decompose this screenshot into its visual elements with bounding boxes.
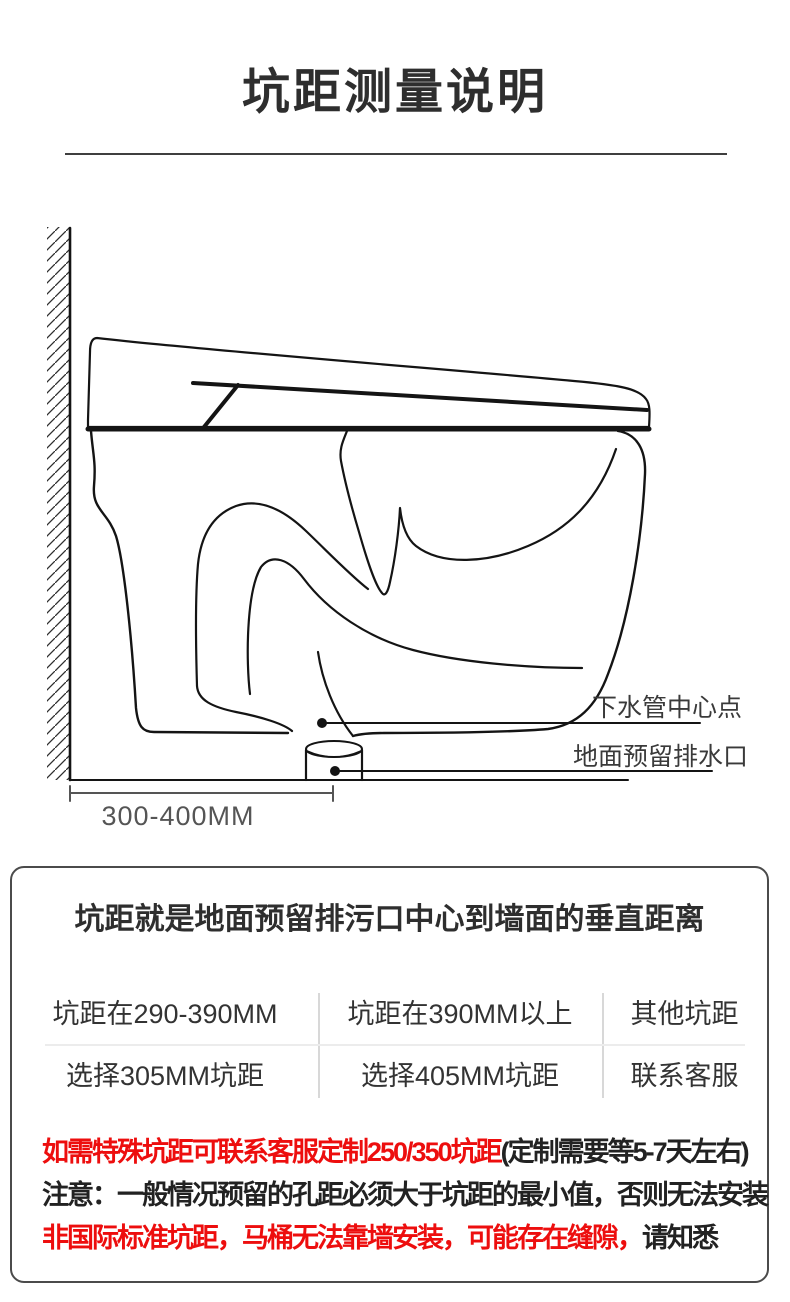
title-divider <box>65 153 727 155</box>
info-box: 坑距就是地面预留排污口中心到墙面的垂直距离 坑距在290-390MM 坑距在39… <box>10 866 769 1283</box>
info-headline: 坑距就是地面预留排污口中心到墙面的垂直距离 <box>12 894 767 938</box>
note-custom-pit-distance: 如需特殊坑距可联系客服定制250/350坑距(定制需要等5-7天左右) <box>42 1131 752 1174</box>
table-cell-action-2: 选择405MM坑距 <box>318 1054 602 1093</box>
table-cell-condition-3: 其他坑距 <box>602 992 767 1031</box>
floor-outlet-label: 地面预留排水口 <box>573 743 748 771</box>
note-non-standard: 非国际标准坑距，马桶无法靠墙安装，可能存在缝隙，请知悉 <box>42 1217 752 1260</box>
dimension-annotation: 300-400MM <box>70 786 333 831</box>
note-attention: 注意：一般情况预留的孔距必须大于坑距的最小值，否则无法安装 <box>42 1174 752 1217</box>
page-title: 坑距测量说明 <box>0 52 790 122</box>
table-cell-condition-1: 坑距在290-390MM <box>12 992 318 1031</box>
table-cell-condition-2: 坑距在390MM以上 <box>318 992 602 1031</box>
toilet-body <box>91 431 645 736</box>
table-row-divider <box>45 1044 745 1046</box>
table-cell-action-3: 联系客服 <box>602 1054 767 1093</box>
page: { "title": { "text": "坑距测量说明" }, "diagra… <box>0 0 790 1302</box>
notes: 如需特殊坑距可联系客服定制250/350坑距(定制需要等5-7天左右) 注意：一… <box>42 1131 752 1260</box>
drain-center-dot <box>317 718 327 728</box>
toilet-lid <box>88 338 650 429</box>
floor-outlet-dot <box>330 766 340 776</box>
drain-center-label: 下水管中心点 <box>592 694 742 722</box>
table-cell-action-1: 选择305MM坑距 <box>12 1054 318 1093</box>
pit-distance-table: 坑距在290-390MM 坑距在390MM以上 其他坑距 选择305MM坑距 选… <box>12 980 767 1104</box>
drain-center-callout: 下水管中心点 <box>317 694 742 728</box>
floor-outlet-callout: 地面预留排水口 <box>330 743 748 776</box>
trap-curve-bowl <box>340 431 616 594</box>
dimension-label: 300-400MM <box>101 801 254 831</box>
toilet-installation-diagram: 下水管中心点 地面预留排水口 300-400MM <box>0 180 790 860</box>
trap-curve-inner <box>248 559 582 694</box>
wall-hatching <box>47 227 70 780</box>
